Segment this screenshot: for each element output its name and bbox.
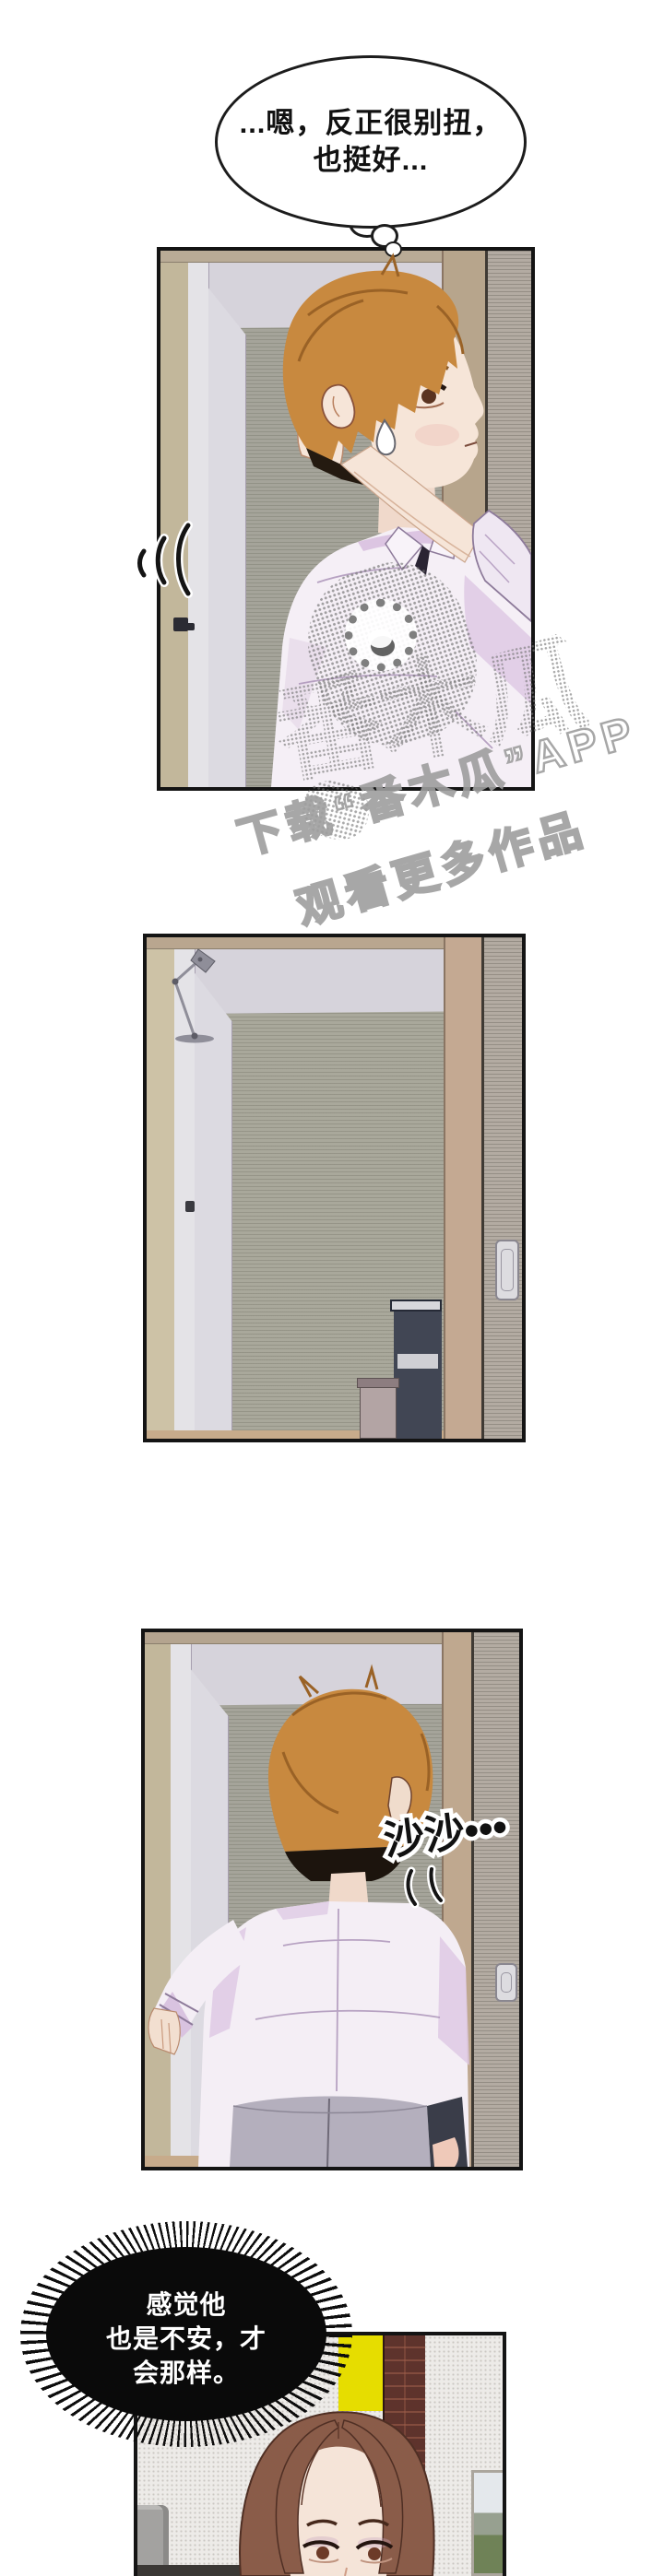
man-back-illustration — [145, 1632, 519, 2167]
cabinet-top — [390, 1300, 442, 1312]
panel-2-empty-hallway — [143, 934, 526, 1442]
sfx-accent-strokes — [398, 1864, 446, 1913]
black-bubble-line-3: 会那样。 — [46, 2356, 326, 2390]
black-bubble-line-2: 也是不安，才 — [46, 2322, 326, 2356]
creak-marks-icon — [125, 514, 210, 618]
cabinet-drawer-band — [397, 1354, 438, 1369]
comic-page: ...嗯，反正很别扭， 也挺好... — [0, 0, 664, 2576]
black-bubble-line-1: 感觉他 — [46, 2288, 326, 2322]
door-handle — [185, 1201, 195, 1212]
right-striped-wall — [481, 937, 522, 1439]
pants — [230, 2097, 431, 2168]
panel-3-man-from-behind — [141, 1629, 523, 2170]
desk-lamp-illustration — [147, 937, 217, 1044]
cabinet — [394, 1312, 442, 1439]
watermark-mascot-pupil-highlight — [368, 629, 392, 648]
trash-can — [360, 1385, 397, 1439]
trash-can-lid — [357, 1378, 399, 1388]
wall-switch-plate — [495, 1240, 519, 1300]
thought-bubble: ...嗯，反正很别扭， 也挺好... — [215, 55, 527, 229]
thought-bubble-line-2: 也挺好... — [314, 142, 429, 179]
wall-switch-inner — [501, 1249, 514, 1291]
right-tan-column — [444, 937, 486, 1439]
black-bubble-text: 感觉他 也是不安，才 会那样。 — [46, 2288, 326, 2390]
thought-bubble-line-1: ...嗯，反正很别扭， — [240, 105, 503, 142]
